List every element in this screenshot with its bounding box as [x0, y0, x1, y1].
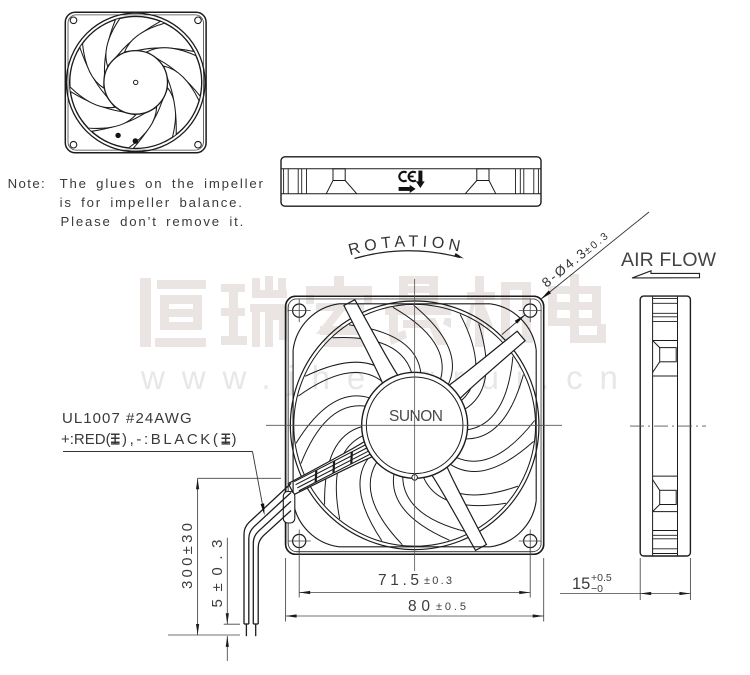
svg-text:UL1007 #24AWG: UL1007 #24AWG: [62, 410, 193, 427]
svg-text:+:RED(: +:RED(: [61, 431, 111, 448]
svg-text:71.5: 71.5: [378, 572, 419, 589]
svg-text:80: 80: [408, 598, 430, 615]
svg-text:±0.5: ±0.5: [436, 601, 466, 613]
svg-text:±0.3: ±0.3: [424, 575, 452, 587]
svg-text:−0: −0: [591, 583, 603, 595]
svg-text:8-Ø4.3: 8-Ø4.3: [539, 246, 589, 290]
svg-text:Please don’t remove it.: Please don’t remove it.: [61, 214, 246, 229]
svg-text:),-:BLACK(: ),-:BLACK(: [122, 431, 221, 448]
svg-text:Note:: Note:: [8, 176, 47, 191]
svg-text:The glues on the impeller: The glues on the impeller: [60, 176, 265, 191]
svg-text:300±30: 300±30: [179, 523, 196, 589]
svg-text:AIR FLOW: AIR FLOW: [621, 249, 717, 271]
svg-text:): ): [232, 431, 237, 448]
svg-text:15: 15: [572, 575, 590, 593]
svg-text:is for impeller balance.: is for impeller balance.: [60, 195, 244, 210]
svg-text:5±0.3: 5±0.3: [209, 540, 226, 608]
svg-text:±0.3: ±0.3: [582, 230, 611, 256]
svg-text:SUNON: SUNON: [389, 408, 443, 425]
